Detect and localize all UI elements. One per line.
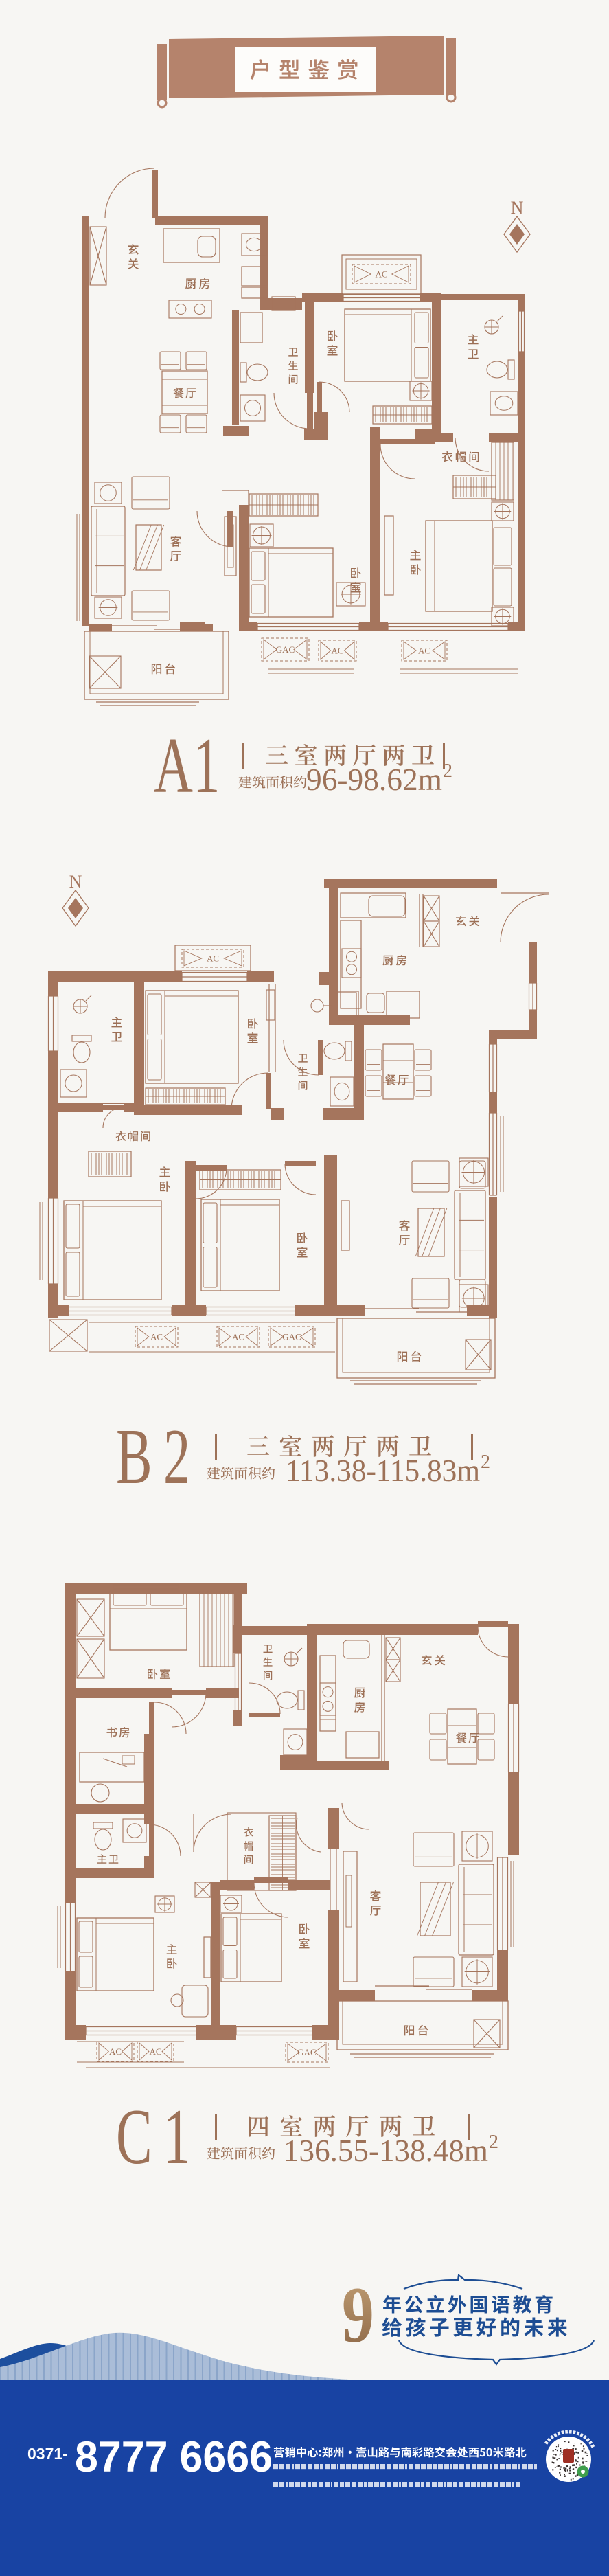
svg-text:AC: AC [331,646,343,656]
svg-text:B2: B2 [116,1413,202,1500]
svg-text:8777 6666: 8777 6666 [75,2433,273,2481]
svg-text:AC: AC [375,269,387,280]
svg-text:GAC: GAC [276,644,295,655]
svg-text:AC: AC [150,1332,163,1342]
svg-text:113.38-115.83m: 113.38-115.83m [286,1453,480,1488]
svg-text:AC: AC [109,2046,122,2057]
svg-text:N: N [69,872,82,892]
svg-text:AC: AC [207,953,219,964]
svg-text:0371-: 0371- [27,2445,68,2463]
svg-text:2: 2 [489,2132,498,2153]
svg-text:N: N [511,198,524,218]
svg-text:136.55-138.48m: 136.55-138.48m [284,2133,488,2168]
svg-text:GAC: GAC [282,1332,301,1342]
svg-text:AC: AC [149,2046,161,2057]
svg-text:2: 2 [481,1451,490,1473]
svg-text:C1: C1 [116,2093,202,2180]
svg-text:2: 2 [443,760,452,782]
svg-text:AC: AC [418,646,430,656]
svg-text:AC: AC [232,1332,244,1342]
svg-text:96-98.62m: 96-98.62m [306,762,442,797]
svg-text:GAC: GAC [297,2047,316,2057]
svg-text:A1: A1 [154,722,220,809]
